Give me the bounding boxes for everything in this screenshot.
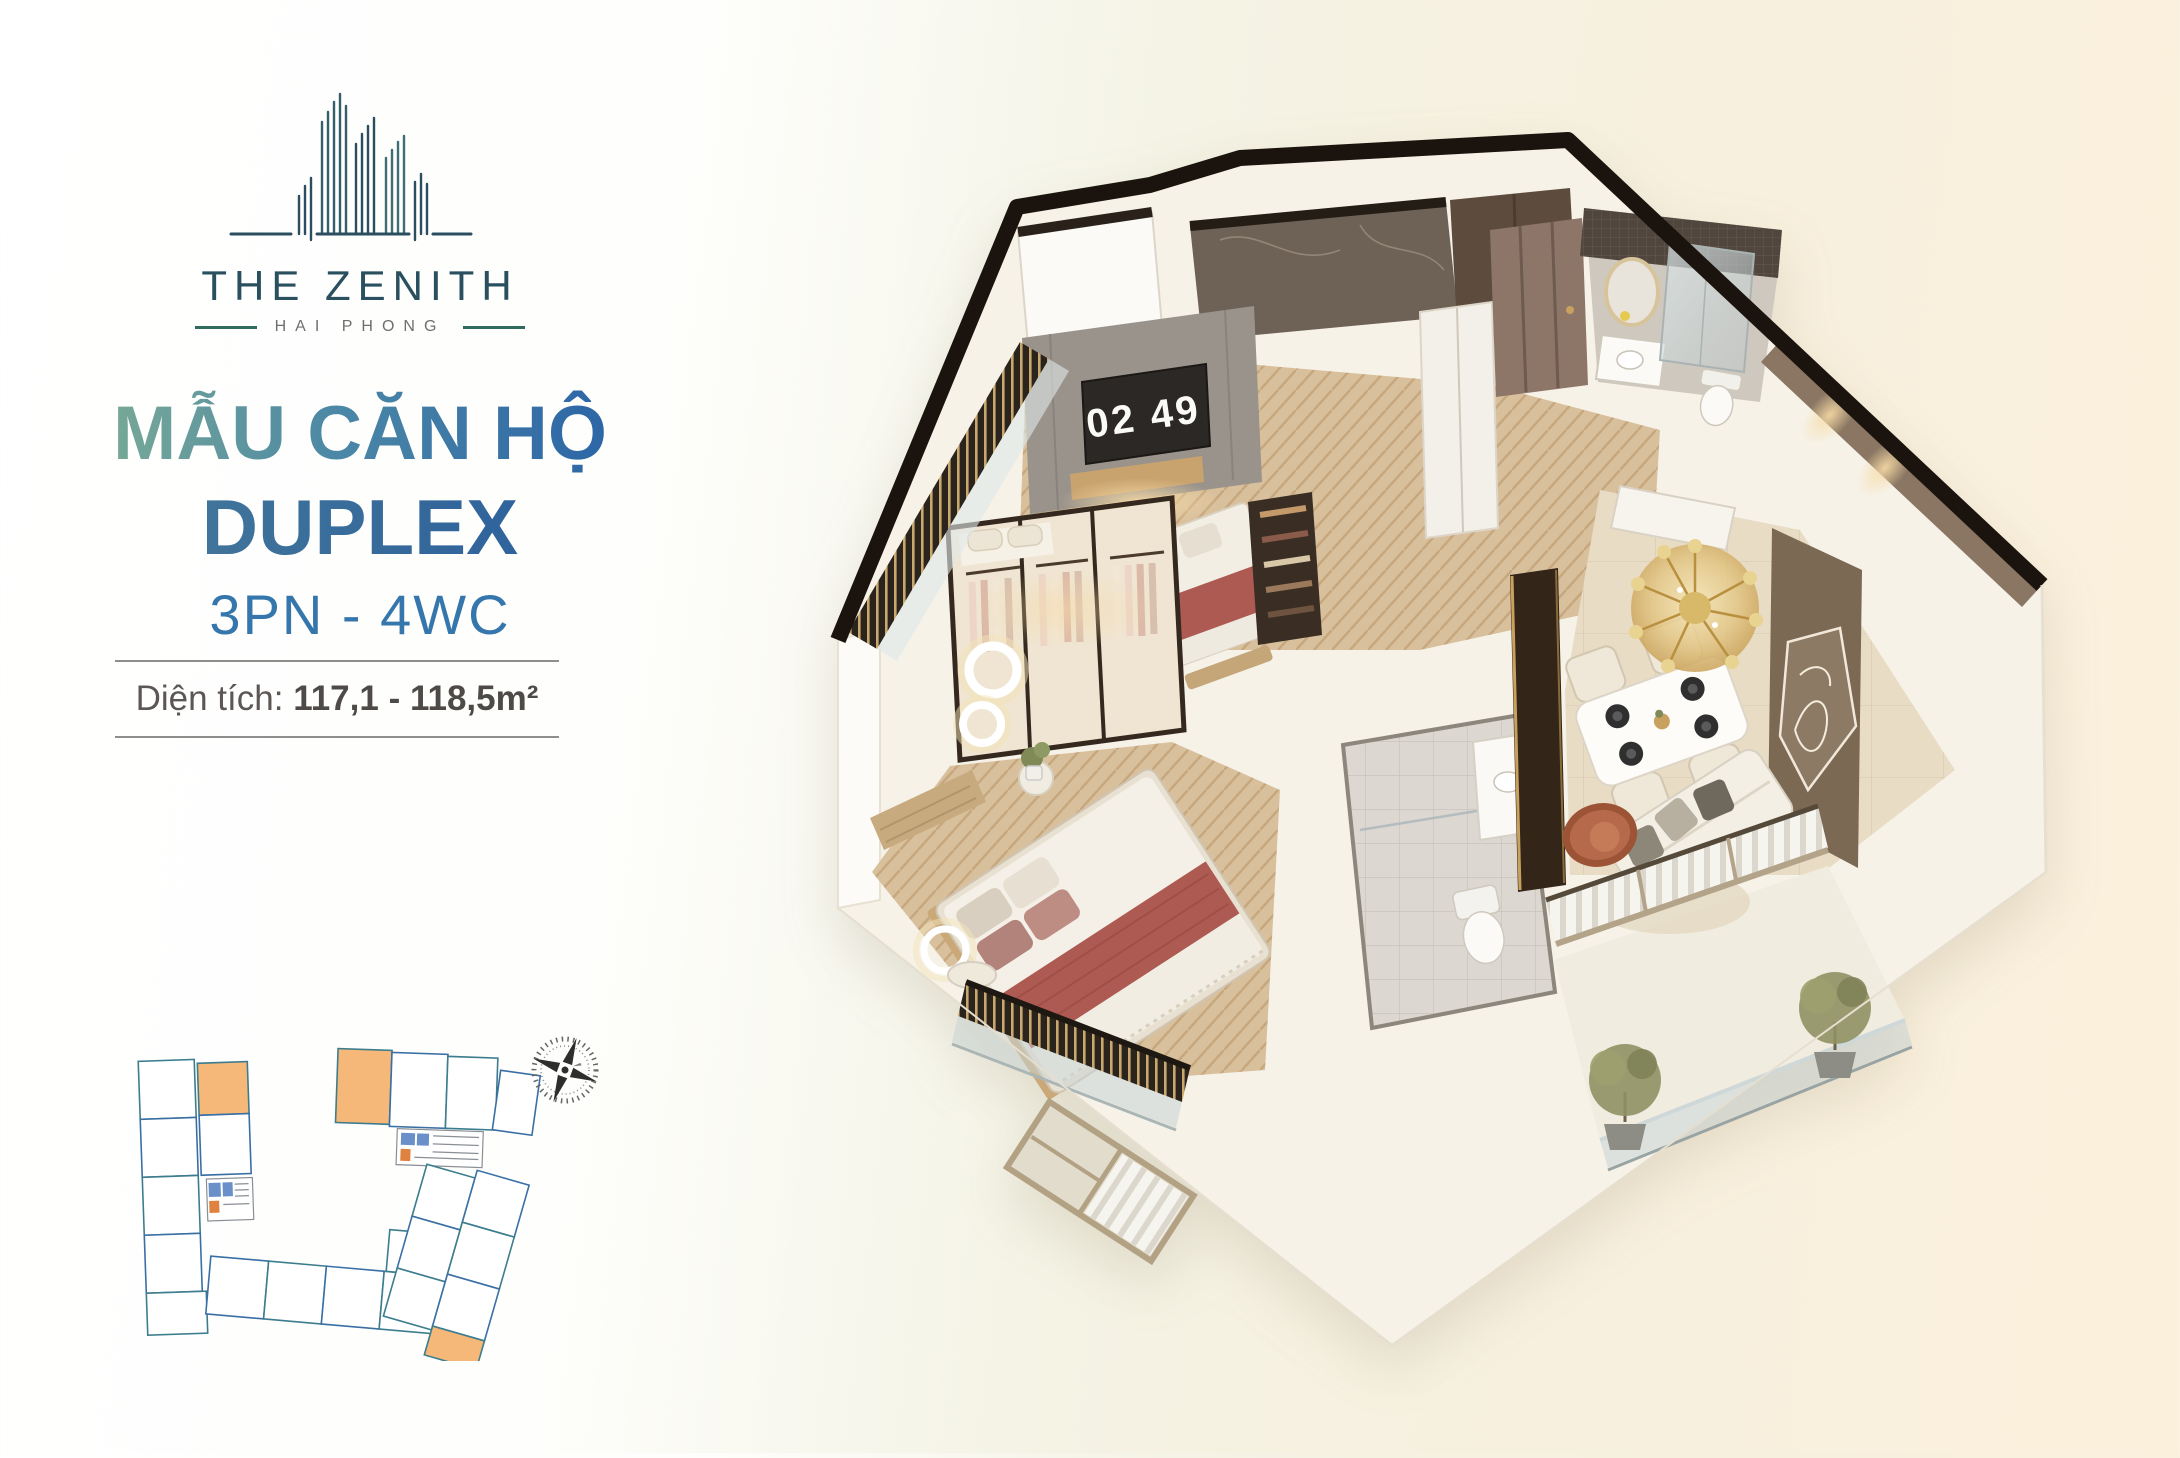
area-label: Diện tích: (136, 679, 284, 718)
page-title-line2: DUPLEX (0, 482, 720, 573)
page-title-line1: MẪU CĂN HỘ (0, 390, 720, 477)
apartment-3d-render: 02 49 (720, 130, 2180, 1458)
brand-name: THE ZENITH (0, 262, 720, 310)
area-info-row: Diện tích: 117,1 - 118,5m² (115, 660, 559, 738)
entry-door (1490, 218, 1588, 397)
building-logo-icon (225, 86, 475, 269)
area-value: 117,1 - 118,5m² (293, 679, 538, 718)
right-dash (463, 326, 525, 329)
highlight-unit-2 (336, 1049, 393, 1125)
left-dash (195, 326, 257, 329)
unit-config-subtitle: 3PN - 4WC (0, 582, 720, 647)
bookshelf (1248, 492, 1322, 645)
highlight-unit-1 (197, 1062, 249, 1116)
core-right (396, 1129, 483, 1168)
brand-location: HAI PHONG (275, 318, 446, 336)
site-plan (95, 1026, 640, 1366)
brand-location-row: HAI PHONG (0, 318, 720, 336)
round-mirror (1606, 259, 1658, 325)
core-left (206, 1177, 253, 1221)
